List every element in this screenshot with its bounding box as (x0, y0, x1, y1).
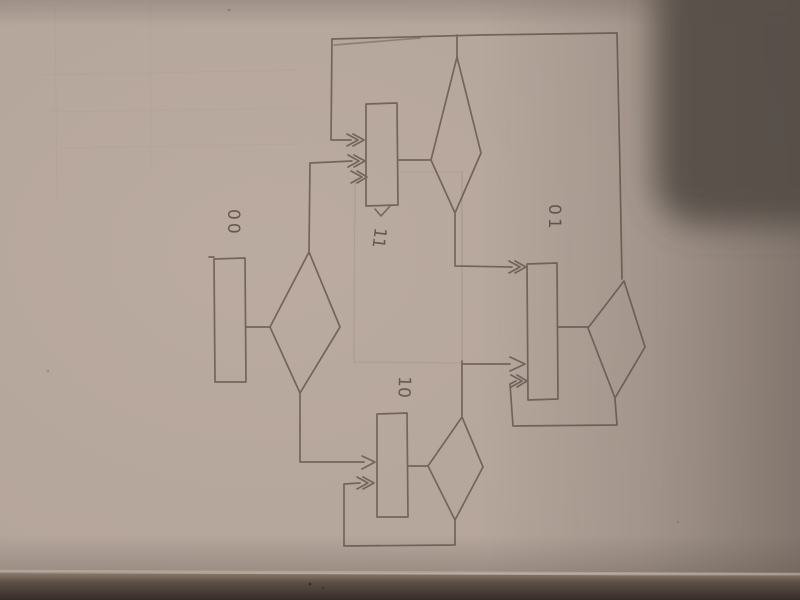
pre-fold-shade (0, 535, 800, 573)
speck (322, 587, 324, 589)
flowchart-photo-canvas: 00 11 01 10 (0, 0, 800, 600)
top-right-shadow-blob (655, 0, 800, 225)
top-edge-shade (0, 0, 800, 26)
speck (309, 583, 312, 586)
bottom-dark-strip (0, 573, 800, 600)
photo-of-hand-drawn-flowchart: 00 11 01 10 (0, 0, 800, 600)
